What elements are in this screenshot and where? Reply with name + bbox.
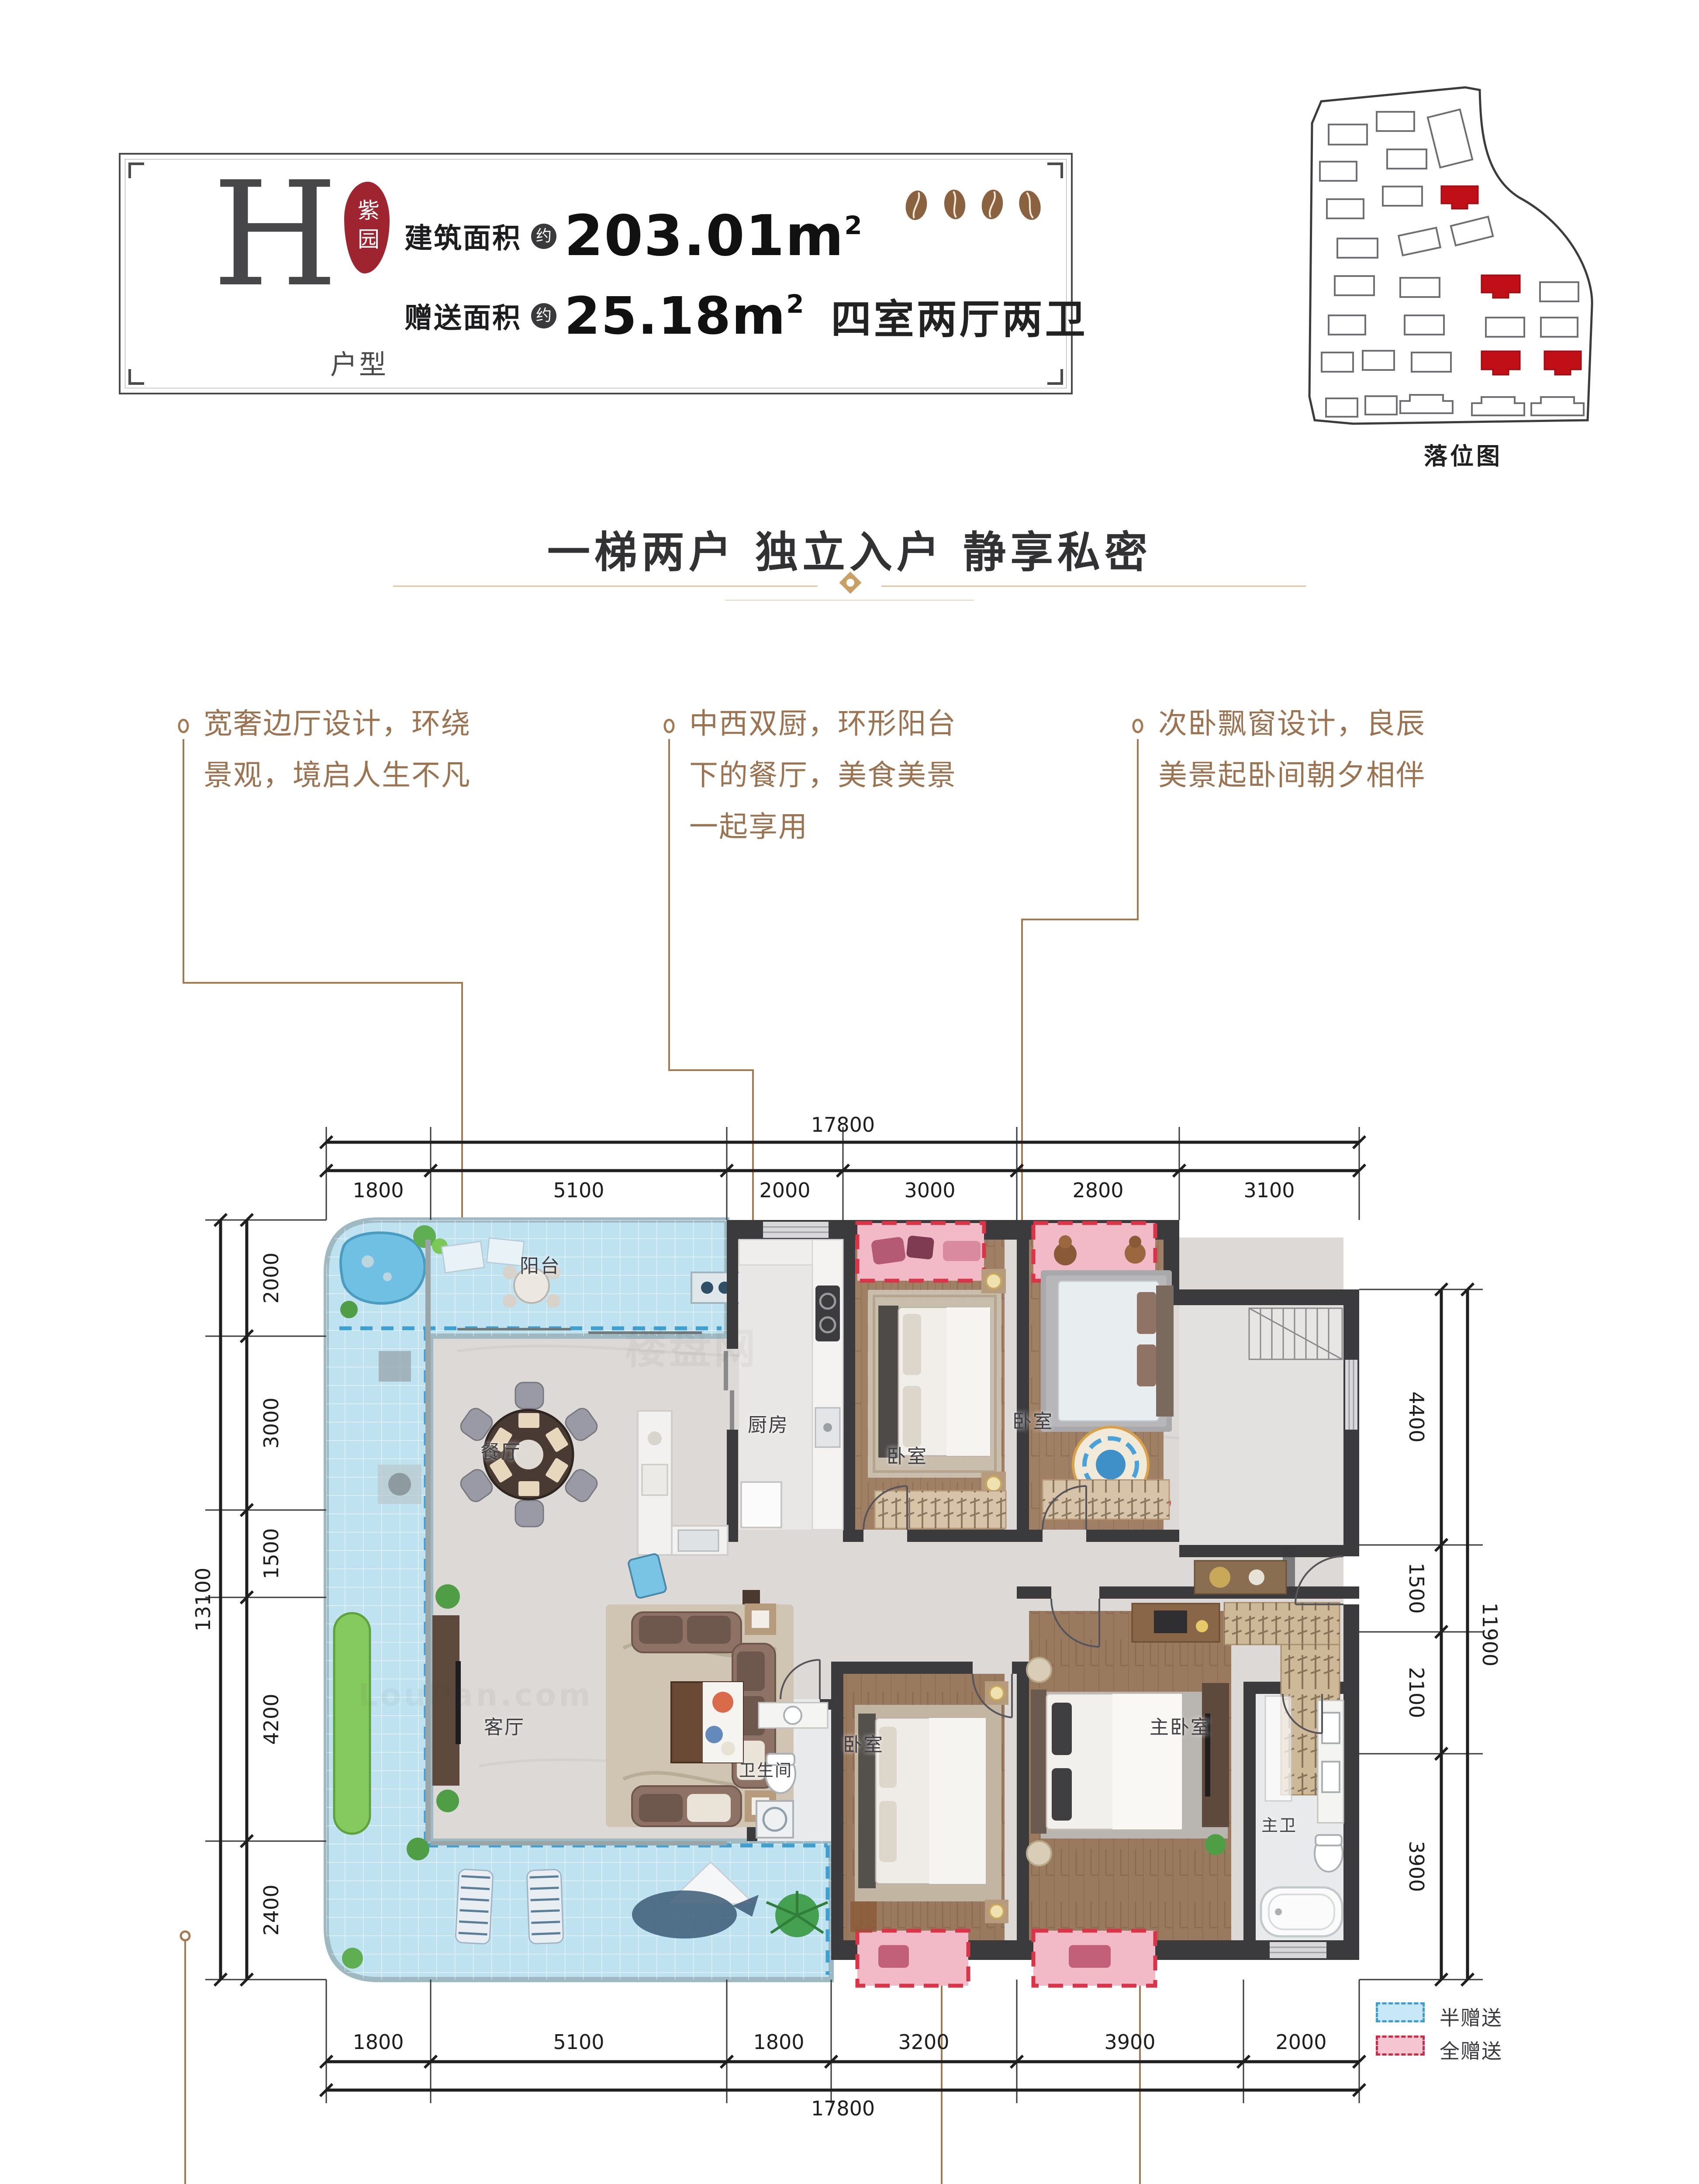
dim-bottom-seg: 5100 [535, 2030, 622, 2054]
dim-bottom-seg: 3200 [880, 2030, 967, 2054]
balcony-pool [341, 1233, 425, 1303]
unit-type-letter: H [212, 162, 338, 307]
frame-corner-icon [128, 162, 144, 178]
frame-corner-icon [1047, 369, 1063, 385]
room-label-bedroom1: 卧室 [887, 1441, 928, 1469]
header-card: H 紫园 户型 建筑面积约203.01m2 赠送面积约25.18m2四室两厅两卫 [119, 153, 1073, 394]
room-label-master-bedroom: 主卧室 [1150, 1711, 1211, 1739]
dim-right-seg: 1500 [1407, 1545, 1428, 1632]
watermark: 楼盘网 [625, 1315, 758, 1375]
dim-bottom-seg: 1800 [335, 2030, 422, 2054]
frame-corner-icon [128, 369, 144, 385]
site-plan-map [1309, 87, 1592, 424]
built-area-row: 建筑面积约203.01m2 [404, 204, 863, 269]
layout-description: 四室两厅两卫 [831, 296, 1088, 343]
legend-full-gift-swatch [1376, 2035, 1425, 2056]
bedroom3-furniture [850, 1681, 1008, 1932]
room-label-living: 客厅 [484, 1711, 525, 1739]
built-area-value: 203.01m2 [564, 204, 863, 269]
dim-left-seg: 2000 [259, 1234, 280, 1322]
dim-bottom-seg: 1800 [735, 2030, 822, 2054]
dim-left-overall: 13100 [191, 1556, 212, 1643]
approx-badge: 约 [531, 303, 556, 328]
unit-type-suffix: 户型 [330, 342, 388, 382]
floor-plan [326, 1220, 1359, 1986]
gift-area-value: 25.18m2 [564, 286, 805, 346]
gift-area-label: 赠送面积 [404, 302, 521, 335]
approx-badge: 约 [531, 224, 556, 249]
legend-half-gift-swatch [1376, 2002, 1425, 2022]
room-label-master-bathroom: 主卫 [1261, 1812, 1297, 1836]
dim-left-seg: 1500 [259, 1510, 280, 1597]
seal-text: 紫园 [351, 199, 383, 256]
balcony-lawn [334, 1613, 370, 1834]
callout-top-right: 次卧飘窗设计，良辰美景起卧间朝夕相伴 [1158, 698, 1426, 801]
gift-area-row: 赠送面积约25.18m2四室两厅两卫 [404, 286, 1088, 346]
room-label-bedroom3: 卧室 [843, 1729, 884, 1757]
dim-right-seg: 3900 [1407, 1823, 1428, 1910]
site-plan-caption: 落位图 [1376, 437, 1551, 471]
dim-top-seg: 1800 [335, 1178, 422, 1202]
dim-left-seg: 2400 [259, 1866, 280, 1954]
dim-top-seg: 5100 [535, 1178, 622, 1202]
dim-top-seg: 2800 [1054, 1178, 1142, 1202]
callout-top-left: 宽奢边厅设计，环绕景观，境启人生不凡 [204, 698, 471, 801]
built-area-label: 建筑面积 [404, 223, 521, 255]
dim-right-seg: 2100 [1407, 1649, 1428, 1736]
room-label-kitchen: 厨房 [748, 1409, 789, 1437]
dim-left-seg: 4200 [259, 1676, 280, 1763]
room-label-balcony: 阳台 [520, 1250, 561, 1278]
dim-top-overall: 17800 [799, 1113, 887, 1137]
callout-top-mid: 中西双厨，环形阳台下的餐厅，美食美景一起享用 [689, 698, 957, 853]
dim-top-seg: 2000 [741, 1178, 829, 1202]
dim-bottom-overall: 17800 [799, 2097, 887, 2120]
room-label-dining: 餐厅 [480, 1436, 521, 1464]
dim-right-seg: 4400 [1407, 1373, 1428, 1461]
room-label-bathroom: 卫生间 [739, 1757, 793, 1781]
legend-full-gift-label: 全赠送 [1440, 2035, 1502, 2064]
stair-core [1249, 1308, 1342, 1359]
dim-left-seg: 3000 [259, 1379, 280, 1467]
legend-half-gift-label: 半赠送 [1440, 2002, 1502, 2031]
frame-corner-icon [1047, 162, 1063, 178]
dim-top-seg: 3100 [1226, 1178, 1313, 1202]
room-label-bedroom2: 卧室 [1012, 1406, 1053, 1434]
dim-bottom-seg: 2000 [1257, 2030, 1345, 2054]
dim-right-overall: 11900 [1481, 1591, 1502, 1678]
dim-top-seg: 3000 [886, 1178, 974, 1202]
floorplan-ad-page: H 紫园 户型 建筑面积约203.01m2 赠送面积约25.18m2四室两厅两卫… [0, 0, 1699, 2184]
watermark: LouPan.com [358, 1677, 593, 1713]
page-title: 一梯两户 独立入户 静享私密 [0, 518, 1699, 580]
dim-bottom-seg: 3900 [1086, 2030, 1174, 2054]
